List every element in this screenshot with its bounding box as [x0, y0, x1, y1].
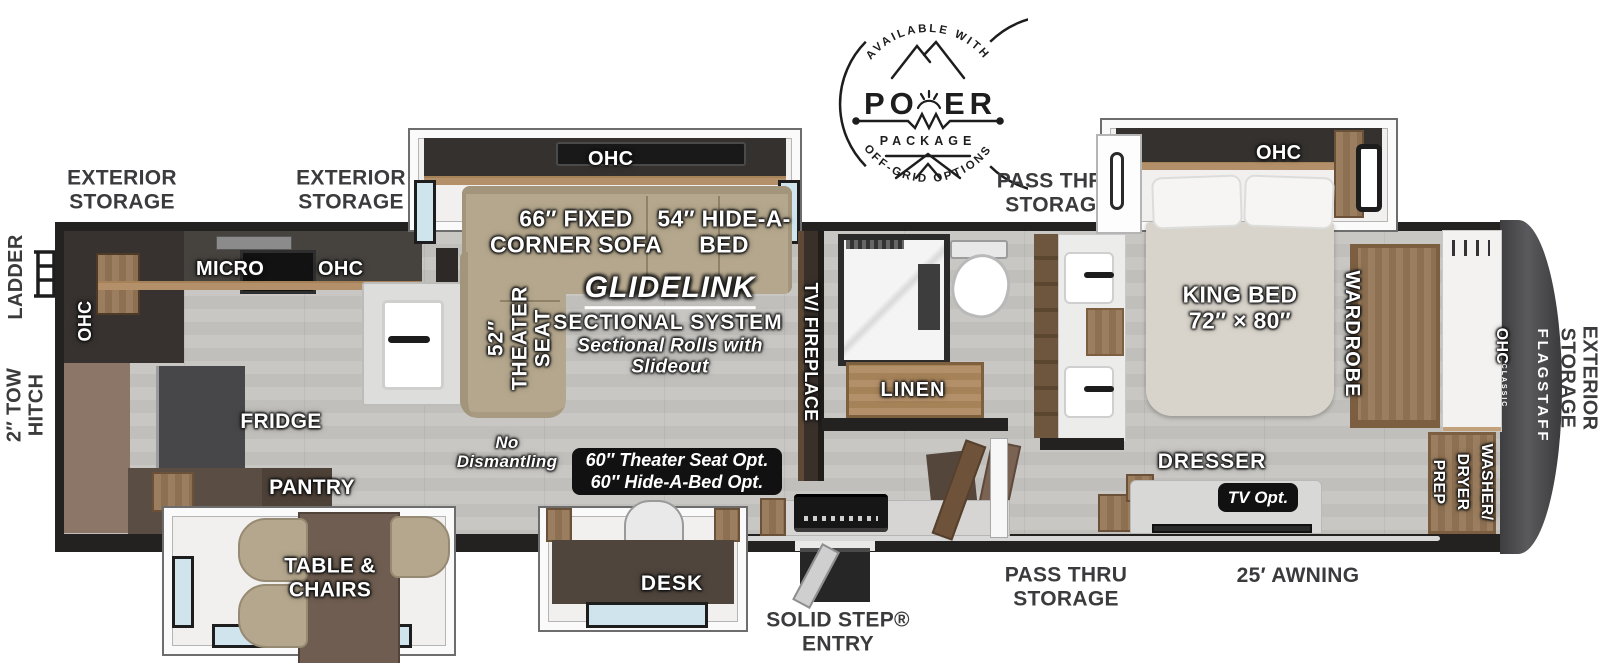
- badge-package-text: PACKAGE: [880, 134, 977, 148]
- microwave: [216, 236, 292, 250]
- living-skylight: [556, 142, 746, 166]
- label-ohc-front: OHC: [1492, 328, 1510, 364]
- floorplan-canvas: AVAILABLE WITH OFF-GRID OPTIONS PO ER PA…: [0, 0, 1600, 663]
- badge-arc-top-text: AVAILABLE WITH: [864, 23, 992, 62]
- label-ladder: LADDER: [5, 234, 27, 319]
- desk-window: [586, 602, 708, 628]
- pillow-left: [1151, 174, 1243, 229]
- dinette-window-left: [172, 556, 194, 628]
- label-desk: DESK: [641, 572, 703, 596]
- bedroom-window: [1356, 144, 1382, 212]
- closet-hanger-bars: [1452, 240, 1490, 256]
- label-linen: LINEN: [881, 379, 946, 401]
- tv-opt-text: TV Opt.: [1228, 488, 1288, 508]
- vanity-end-wall: [1040, 438, 1124, 450]
- svg-text:AVAILABLE WITH: AVAILABLE WITH: [864, 23, 992, 62]
- brand-name: FLAGSTAFF: [1534, 328, 1551, 443]
- griddle: [794, 494, 888, 532]
- vanity-sink-1: [1064, 252, 1114, 304]
- pillow-right: [1243, 174, 1335, 229]
- griddle-dots: [804, 516, 878, 521]
- label-no-dismantling: No Dismantling: [457, 433, 558, 471]
- dresser-tv: [1152, 524, 1312, 533]
- vanity-faucet-2: [1084, 386, 1114, 392]
- label-ohc-wall: OHC: [75, 301, 95, 342]
- kitchen-sink: [382, 300, 444, 390]
- label-tv-fireplace: TV/ FIREPLACE: [801, 283, 821, 422]
- shower-caddy: [918, 264, 940, 330]
- shower-head-strip: [846, 240, 904, 249]
- label-ohc-counter: OHC: [318, 258, 363, 280]
- glidelink-logo: GLIDELINK: [585, 271, 756, 309]
- cabinet-side-panel: [436, 248, 458, 282]
- label-pantry: PANTRY: [269, 476, 355, 500]
- badge-word-er: ER: [944, 86, 997, 121]
- options-badge: 60″ Theater Seat Opt. 60″ Hide-A-Bed Opt…: [572, 448, 782, 495]
- label-solid-step-entry: SOLID STEP® ENTRY: [766, 608, 910, 655]
- entry-door-frame: [990, 438, 1008, 538]
- vanity-tall-cabinet: [1034, 234, 1058, 438]
- label-sectional-note: Sectional Rolls with Slideout: [577, 336, 762, 379]
- label-theater-seat: 52″ THEATER SEAT: [485, 286, 556, 391]
- label-pass-thru-bottom: PASS THRU STORAGE: [1005, 563, 1128, 610]
- vanity-faucet-1: [1084, 272, 1114, 278]
- label-tow-hitch: 2″ TOW HITCH: [4, 368, 49, 442]
- entry-counter-wood-cap: [760, 498, 786, 536]
- label-king-bed: KING BED 72″ × 80″: [1183, 282, 1298, 334]
- faucet: [388, 336, 430, 343]
- badge-word-po: PO: [864, 86, 919, 121]
- label-micro: MICRO: [196, 258, 264, 280]
- desk-slide-cap-right: [714, 508, 740, 542]
- dinette-chair-3: [390, 516, 450, 578]
- label-bedroom-ohc: OHC: [1256, 142, 1301, 164]
- label-washer-dryer: WASHER/ DRYER PREP: [1426, 444, 1498, 521]
- mountains-icon: [892, 42, 964, 78]
- bath-bottom-wall: [822, 418, 1008, 431]
- label-wardrobe: WARDROBE: [1341, 271, 1363, 398]
- vanity-mid-cabinet: [1086, 308, 1124, 356]
- sun-icon: [918, 91, 940, 108]
- label-exterior-storage-1: EXTERIOR STORAGE: [67, 166, 177, 213]
- label-dresser: DRESSER: [1158, 450, 1267, 474]
- living-window-left: [414, 180, 436, 244]
- pass-thru-door: [1110, 152, 1124, 210]
- label-exterior-storage-2: EXTERIOR STORAGE: [296, 166, 406, 213]
- refrigerator: [156, 366, 245, 478]
- label-living-ohc: OHC: [588, 148, 633, 170]
- desk-slide-cap-left: [546, 508, 572, 542]
- label-awning: 25′ AWNING: [1237, 564, 1360, 588]
- pantry-cabinet-front: [64, 363, 130, 533]
- tv-opt-badge: TV Opt.: [1218, 483, 1298, 512]
- wardrobe-cabinet: [1350, 244, 1440, 428]
- vanity-sink-2: [1064, 366, 1114, 418]
- label-sectional-system: SECTIONAL SYSTEM: [553, 311, 782, 335]
- living-ohc-shelf: [424, 176, 786, 185]
- label-table-chairs: TABLE & CHAIRS: [284, 554, 376, 601]
- label-hide-a-bed: 54″ HIDE-A- BED: [634, 206, 814, 258]
- awning-roll: [740, 536, 1440, 541]
- options-badge-text: 60″ Theater Seat Opt. 60″ Hide-A-Bed Opt…: [586, 450, 769, 492]
- label-fridge: FRIDGE: [240, 410, 321, 434]
